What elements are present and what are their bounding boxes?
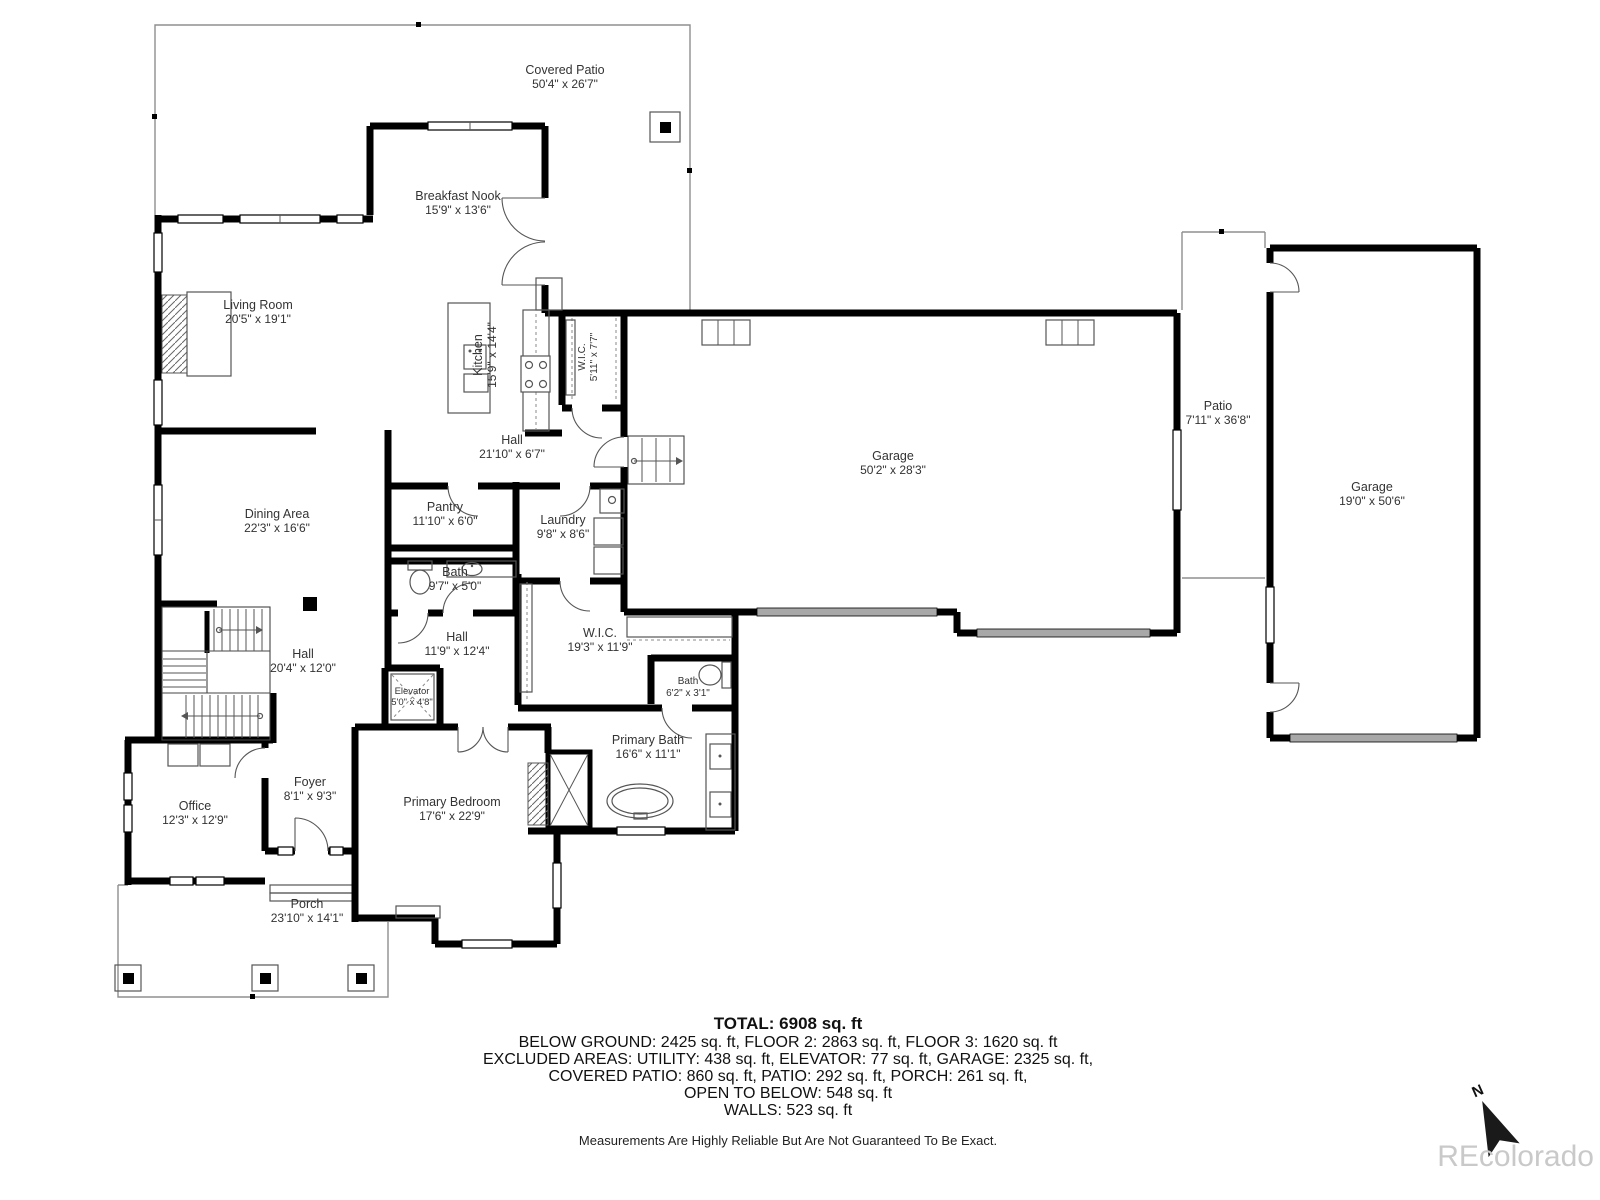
svg-text:5'0" x 4'8": 5'0" x 4'8": [391, 697, 433, 708]
north-label: N: [1469, 1081, 1486, 1101]
svg-text:W.I.C.: W.I.C.: [577, 343, 588, 370]
svg-text:50'2" x 28'3": 50'2" x 28'3": [860, 463, 926, 477]
room-labels: Covered Patio 50'4" x 26'7" Breakfast No…: [162, 63, 1405, 925]
svg-text:12'3" x 12'9": 12'3" x 12'9": [162, 813, 228, 827]
svg-text:7'11" x 36'8": 7'11" x 36'8": [1186, 413, 1251, 427]
label-bath-small: Bath: [678, 676, 699, 687]
walls: [125, 126, 1477, 944]
label-garage-right: Garage: [1351, 480, 1393, 494]
svg-text:9'7" x 5'0": 9'7" x 5'0": [429, 579, 481, 593]
svg-text:16'6" x 11'1": 16'6" x 11'1": [616, 747, 681, 761]
svg-text:8'1" x 9'3": 8'1" x 9'3": [284, 789, 336, 803]
staircase-garage: [628, 436, 684, 484]
summary-excluded-2: COVERED PATIO: 860 sq. ft, PATIO: 292 sq…: [549, 1068, 1028, 1085]
label-living-room: Living Room: [223, 298, 292, 312]
label-hall-upper: Hall: [501, 433, 523, 447]
label-breakfast-nook: Breakfast Nook: [415, 189, 501, 203]
label-garage-main: Garage: [872, 449, 914, 463]
svg-text:5'11" x 7'7": 5'11" x 7'7": [589, 332, 600, 381]
porch-outline: [115, 885, 388, 999]
label-office: Office: [179, 799, 211, 813]
covered-patio-outline: [152, 22, 692, 310]
svg-text:9'8" x 8'6": 9'8" x 8'6": [537, 527, 589, 541]
svg-text:15'9" x 13'6": 15'9" x 13'6": [425, 203, 491, 217]
staircase-main: [162, 607, 270, 740]
column-markers: [303, 597, 317, 611]
label-covered-patio: Covered Patio: [525, 63, 604, 77]
label-hall-main: Hall: [292, 647, 314, 661]
label-bath: Bath: [442, 565, 468, 579]
summary-walls: WALLS: 523 sq. ft: [724, 1102, 853, 1119]
label-wic-kitchen: W.I.C. 5'11" x 7'7": [577, 332, 600, 381]
svg-text:22'3" x 16'6": 22'3" x 16'6": [244, 521, 310, 535]
label-laundry: Laundry: [540, 513, 586, 527]
svg-text:50'4" x 26'7": 50'4" x 26'7": [532, 77, 598, 91]
svg-text:20'4" x 12'0": 20'4" x 12'0": [270, 661, 336, 675]
label-pantry: Pantry: [427, 500, 464, 514]
label-hall-lower: Hall: [446, 630, 468, 644]
label-patio: Patio: [1204, 399, 1233, 413]
bedroom-fireplace: [528, 763, 548, 825]
label-dining-area: Dining Area: [245, 507, 310, 521]
label-primary-bedroom: Primary Bedroom: [403, 795, 500, 809]
summary-excluded-1: EXCLUDED AREAS: UTILITY: 438 sq. ft, ELE…: [483, 1051, 1093, 1068]
summary-total: TOTAL: 6908 sq. ft: [714, 1014, 863, 1033]
svg-text:17'6" x 22'9": 17'6" x 22'9": [419, 809, 485, 823]
garage-door-bars: [757, 608, 1457, 742]
windows: [124, 122, 1274, 948]
label-foyer: Foyer: [294, 775, 326, 789]
office-closet: [168, 744, 230, 766]
svg-text:11'10" x 6'0": 11'10" x 6'0": [413, 514, 478, 528]
living-fireplace: [162, 292, 231, 376]
watermark: REcolorado: [1437, 1140, 1594, 1173]
label-kitchen: Kitchen 15'9" x 14'4": [471, 322, 499, 388]
label-primary-bath: Primary Bath: [612, 733, 684, 747]
shower: [548, 752, 590, 828]
svg-text:21'10" x 6'7": 21'10" x 6'7": [479, 447, 545, 461]
floor-plan-drawing: Covered Patio 50'4" x 26'7" Breakfast No…: [0, 0, 1600, 1200]
laundry-fixtures: [594, 489, 624, 574]
floor-plan-page: Covered Patio 50'4" x 26'7" Breakfast No…: [0, 0, 1600, 1200]
door-arcs: [235, 198, 1299, 851]
summary-block: TOTAL: 6908 sq. ft BELOW GROUND: 2425 sq…: [483, 1014, 1093, 1148]
label-porch: Porch: [291, 897, 324, 911]
label-elevator: Elevator: [395, 686, 430, 697]
disclaimer: Measurements Are Highly Reliable But Are…: [579, 1133, 997, 1148]
svg-text:19'0" x 50'6": 19'0" x 50'6": [1339, 494, 1405, 508]
garage-storage: [702, 320, 1094, 345]
svg-text:6'2" x 3'1": 6'2" x 3'1": [666, 688, 710, 699]
svg-text:23'10" x 14'1": 23'10" x 14'1": [271, 911, 344, 925]
svg-text:15'9" x 14'4": 15'9" x 14'4": [485, 322, 499, 388]
summary-floors: BELOW GROUND: 2425 sq. ft, FLOOR 2: 2863…: [519, 1034, 1058, 1051]
small-bath-toilet: [699, 662, 731, 688]
svg-text:Kitchen: Kitchen: [471, 334, 485, 376]
svg-text:11'9" x 12'4": 11'9" x 12'4": [425, 644, 490, 658]
svg-text:19'3" x 11'9": 19'3" x 11'9": [568, 640, 633, 654]
summary-open-below: OPEN TO BELOW: 548 sq. ft: [684, 1085, 893, 1102]
label-wic-primary: W.I.C.: [583, 626, 617, 640]
svg-text:20'5" x 19'1": 20'5" x 19'1": [225, 312, 291, 326]
